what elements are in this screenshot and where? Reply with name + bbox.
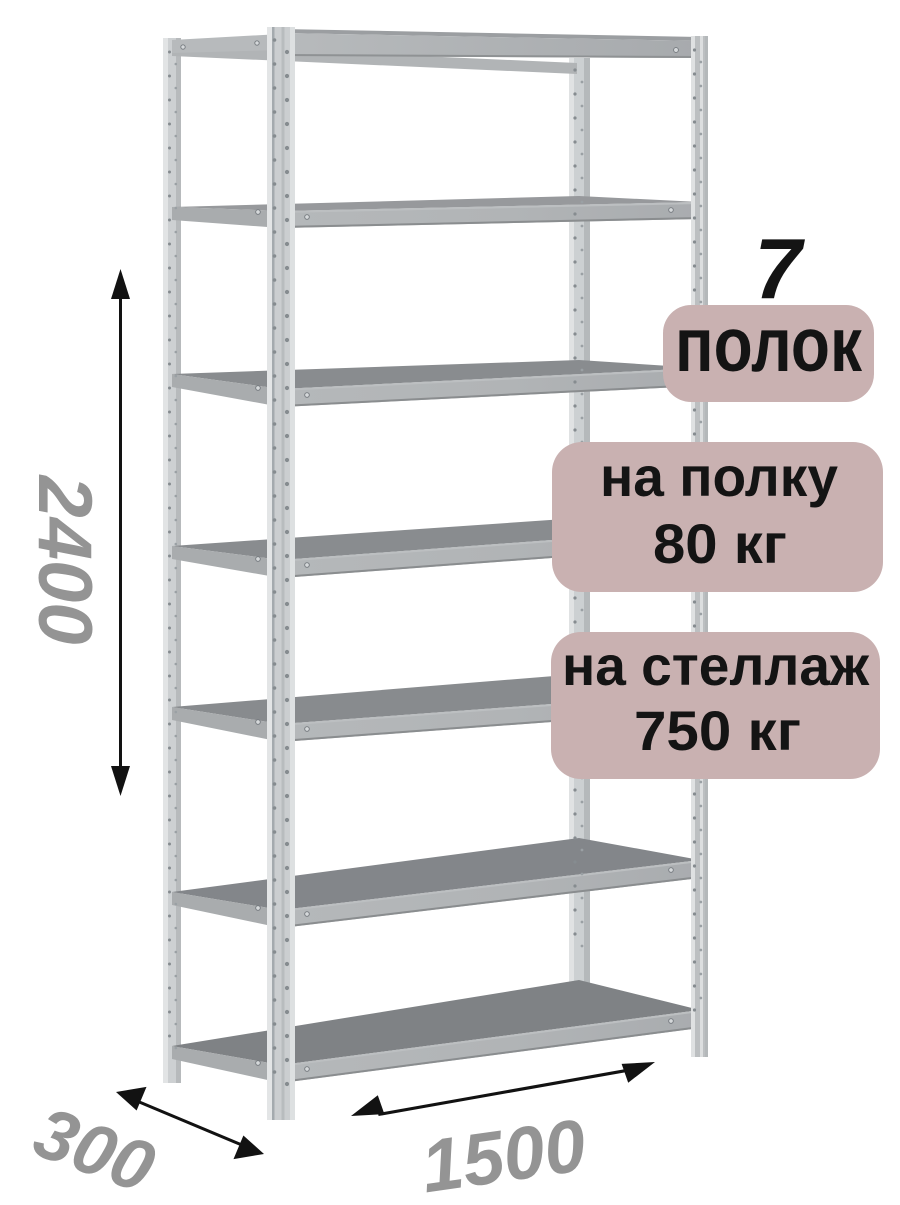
- svg-text:на стеллаж: на стеллаж: [562, 634, 870, 697]
- svg-text:на полку: на полку: [600, 445, 838, 508]
- svg-text:80 кг: 80 кг: [653, 512, 787, 575]
- svg-text:2400: 2400: [22, 473, 107, 644]
- svg-text:полок: полок: [675, 302, 862, 388]
- svg-text:750 кг: 750 кг: [634, 699, 801, 762]
